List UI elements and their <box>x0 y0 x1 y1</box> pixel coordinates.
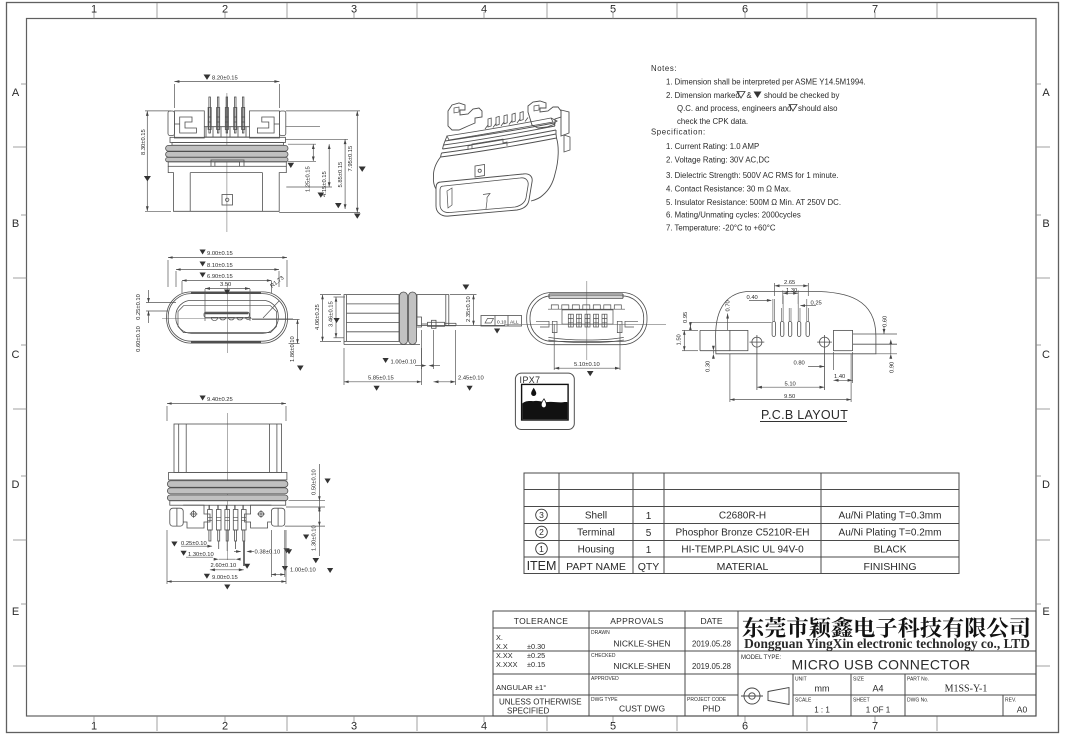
svg-text:1: 1 <box>539 544 544 554</box>
svg-text:3.46±0.15: 3.46±0.15 <box>328 301 334 327</box>
svg-text:SHEET: SHEET <box>853 698 870 704</box>
svg-text:1.25±0.15: 1.25±0.15 <box>306 166 312 192</box>
svg-text:SPECIFIED: SPECIFIED <box>507 707 549 716</box>
svg-text:Au/Ni Plating T=0.3mm: Au/Ni Plating T=0.3mm <box>839 511 942 522</box>
svg-text:C: C <box>12 349 20 361</box>
svg-text:1.30±0.10: 1.30±0.10 <box>312 525 318 551</box>
svg-text:5. Insulator Resistance: 500M: 5. Insulator Resistance: 500M Ω Min. AT … <box>666 198 841 207</box>
svg-text:0.60: 0.60 <box>883 316 889 327</box>
svg-text:5: 5 <box>646 528 652 539</box>
svg-text:NICKLE-SHEN: NICKLE-SHEN <box>613 661 670 671</box>
svg-text:4.06±0.25: 4.06±0.25 <box>315 304 321 330</box>
svg-text:X.XXX: X.XXX <box>496 660 518 669</box>
svg-text:SCALE: SCALE <box>795 698 812 704</box>
svg-text:0.70: 0.70 <box>725 300 731 311</box>
svg-text:PROJECT CODE: PROJECT CODE <box>687 697 727 703</box>
svg-text:1. Current Rating: 1.0 AMP: 1. Current Rating: 1.0 AMP <box>666 142 759 151</box>
svg-text:5.85±0.15: 5.85±0.15 <box>368 376 394 382</box>
svg-text:4: 4 <box>481 721 487 733</box>
svg-text:UNIT: UNIT <box>795 677 807 683</box>
svg-text:MATERIAL: MATERIAL <box>717 561 769 573</box>
svg-text:5: 5 <box>610 4 616 16</box>
svg-text:BLACK: BLACK <box>874 545 907 556</box>
svg-text:6.90±0.15: 6.90±0.15 <box>207 274 233 280</box>
svg-text:1: 1 <box>91 4 97 16</box>
svg-text:8.20±0.15: 8.20±0.15 <box>212 76 238 82</box>
svg-text:3: 3 <box>351 4 357 16</box>
svg-text:7.95±0.15: 7.95±0.15 <box>348 146 354 172</box>
svg-text:4. Contact Resistance: 30 m Ω: 4. Contact Resistance: 30 m Ω Max. <box>666 185 791 194</box>
svg-text:NICKLE-SHEN: NICKLE-SHEN <box>613 639 670 649</box>
svg-text:2.60±0.10: 2.60±0.10 <box>211 563 237 569</box>
svg-text:E: E <box>1042 606 1049 618</box>
svg-text:REV.: REV. <box>1005 698 1016 704</box>
svg-text:HI-TEMP.PLASIC UL 94V-0: HI-TEMP.PLASIC UL 94V-0 <box>681 545 804 556</box>
svg-text:1.00±0.10: 1.00±0.10 <box>290 567 316 573</box>
svg-text:±0.15: ±0.15 <box>527 660 545 669</box>
svg-text:±0.25: ±0.25 <box>527 651 545 660</box>
svg-text:Dongguan YingXin electronic te: Dongguan YingXin electronic technology c… <box>744 636 1030 651</box>
svg-text:5.10±0.10: 5.10±0.10 <box>574 362 600 368</box>
svg-text:DRAWN: DRAWN <box>591 630 610 636</box>
svg-text:1 : 1: 1 : 1 <box>814 706 830 715</box>
svg-text:±0.30: ±0.30 <box>527 642 545 651</box>
svg-text:0.80: 0.80 <box>794 361 805 367</box>
svg-text:CHECKED: CHECKED <box>591 653 616 659</box>
svg-text:2019.05.28: 2019.05.28 <box>692 662 731 671</box>
svg-text:1. Dimension shall be interpre: 1. Dimension shall be interpreted per AS… <box>666 78 866 87</box>
svg-text:7: 7 <box>872 4 878 16</box>
svg-text:1.00±0.10: 1.00±0.10 <box>391 360 417 366</box>
svg-text:9.00±0.15: 9.00±0.15 <box>207 251 233 257</box>
svg-text:should also: should also <box>798 104 838 113</box>
svg-text:X.X: X.X <box>496 642 508 651</box>
svg-text:9.00±0.15: 9.00±0.15 <box>212 575 238 581</box>
svg-text:ANGULAR ±1°: ANGULAR ±1° <box>496 683 546 692</box>
svg-text:DATE: DATE <box>700 616 722 626</box>
svg-text:PAPT NAME: PAPT NAME <box>566 561 626 573</box>
svg-text:Q.C. and process, engineers an: Q.C. and process, engineers and <box>677 104 791 113</box>
svg-text:PHD: PHD <box>703 704 721 714</box>
svg-text:1: 1 <box>646 511 652 522</box>
svg-text:X.: X. <box>496 633 503 642</box>
svg-text:2: 2 <box>539 527 544 537</box>
svg-text:2.45±0.10: 2.45±0.10 <box>458 376 484 382</box>
svg-text:2: 2 <box>222 4 228 16</box>
svg-text:TOLERANCE: TOLERANCE <box>514 616 569 626</box>
svg-text:A: A <box>1042 87 1050 99</box>
svg-text:IPX7: IPX7 <box>520 375 541 385</box>
svg-text:0.25±0.10: 0.25±0.10 <box>136 294 142 320</box>
svg-text:6. Mating/Unmating cycles: 200: 6. Mating/Unmating cycles: 2000cycles <box>666 211 801 220</box>
svg-text:0.50±0.10: 0.50±0.10 <box>312 469 318 495</box>
svg-text:Shell: Shell <box>585 511 607 522</box>
svg-text:ALL: ALL <box>510 320 519 326</box>
svg-text:A: A <box>12 87 20 99</box>
svg-text:4: 4 <box>481 4 487 16</box>
svg-text:X.XX: X.XX <box>496 651 513 660</box>
svg-text:Phosphor Bronze C5210R-EH: Phosphor Bronze C5210R-EH <box>676 528 810 539</box>
svg-text:E: E <box>12 606 19 618</box>
svg-text:APPROVALS: APPROVALS <box>610 616 664 626</box>
svg-text:Housing: Housing <box>578 545 615 556</box>
svg-text:DWG TYPE: DWG TYPE <box>591 697 618 703</box>
svg-text:3: 3 <box>539 510 544 520</box>
svg-text:2: 2 <box>222 721 228 733</box>
svg-text:C: C <box>1042 349 1050 361</box>
svg-text:2019.05.28: 2019.05.28 <box>692 640 731 649</box>
svg-text:1 OF 1: 1 OF 1 <box>866 706 891 715</box>
svg-text:1.30: 1.30 <box>786 288 797 294</box>
svg-text:P.C.B LAYOUT: P.C.B LAYOUT <box>761 408 848 422</box>
svg-text:Notes:: Notes: <box>651 64 677 73</box>
svg-text:C2680R-H: C2680R-H <box>719 511 766 522</box>
svg-text:1.50: 1.50 <box>677 334 683 345</box>
svg-text:Specification:: Specification: <box>651 128 706 137</box>
svg-text:A4: A4 <box>872 684 883 694</box>
svg-text:ITEM: ITEM <box>527 559 557 573</box>
svg-text:1.40: 1.40 <box>834 374 845 380</box>
svg-text:2.35±0.10: 2.35±0.10 <box>466 296 472 322</box>
svg-text:A0: A0 <box>1017 705 1028 715</box>
svg-text:0.30: 0.30 <box>706 361 712 372</box>
svg-text:2.65: 2.65 <box>784 280 795 286</box>
svg-text:1: 1 <box>646 545 652 556</box>
svg-text:1.86±0.10: 1.86±0.10 <box>290 336 296 362</box>
svg-text:3: 3 <box>351 721 357 733</box>
svg-text:5.10: 5.10 <box>785 382 796 388</box>
svg-text:5.85±0.15: 5.85±0.15 <box>338 162 344 188</box>
svg-text:MICRO USB CONNECTOR: MICRO USB CONNECTOR <box>792 657 971 673</box>
svg-text:0.90: 0.90 <box>889 362 895 373</box>
svg-text:5: 5 <box>610 721 616 733</box>
svg-text:0.60±0.10: 0.60±0.10 <box>136 326 142 352</box>
svg-text:8.30±0.15: 8.30±0.15 <box>141 129 147 155</box>
svg-text:3. Dielectric Strength: 500V A: 3. Dielectric Strength: 500V AC RMS for … <box>666 171 838 180</box>
svg-text:should be checked by: should be checked by <box>764 91 840 100</box>
svg-text:D: D <box>1042 479 1050 491</box>
svg-text:UNLESS OTHERWISE: UNLESS OTHERWISE <box>499 698 582 707</box>
svg-text:CUST DWG: CUST DWG <box>619 704 665 714</box>
svg-text:7: 7 <box>872 721 878 733</box>
svg-text:PART No.: PART No. <box>907 677 929 683</box>
svg-text:B: B <box>1042 218 1049 230</box>
svg-text:1: 1 <box>91 721 97 733</box>
svg-text:9.40±0.25: 9.40±0.25 <box>207 397 233 403</box>
svg-text:QTY: QTY <box>638 561 660 573</box>
svg-text:M1SS-Y-1: M1SS-Y-1 <box>945 684 988 695</box>
svg-text:Terminal: Terminal <box>577 528 615 539</box>
svg-text:APPROVED: APPROVED <box>591 676 619 682</box>
svg-text:&: & <box>747 91 753 100</box>
svg-text:0.95: 0.95 <box>683 312 689 323</box>
svg-text:mm: mm <box>815 684 830 694</box>
svg-text:6: 6 <box>742 721 748 733</box>
svg-text:D: D <box>12 479 20 491</box>
svg-text:B: B <box>12 218 19 230</box>
svg-text:0.38±0.10: 0.38±0.10 <box>255 549 281 555</box>
svg-text:check the CPK data.: check the CPK data. <box>677 117 748 126</box>
svg-text:8.10±0.15: 8.10±0.15 <box>207 263 233 269</box>
svg-text:2. Dimension marked: 2. Dimension marked <box>666 91 740 100</box>
svg-text:9.50: 9.50 <box>784 394 795 400</box>
svg-text:3.50: 3.50 <box>220 282 231 288</box>
svg-text:DWG No.: DWG No. <box>907 698 928 704</box>
svg-text:SIZE: SIZE <box>853 677 865 683</box>
svg-text:2. Voltage Rating: 30V AC,DC: 2. Voltage Rating: 30V AC,DC <box>666 156 770 165</box>
svg-text:FINISHING: FINISHING <box>863 561 916 573</box>
svg-text:Au/Ni Plating T=0.2mm: Au/Ni Plating T=0.2mm <box>839 528 942 539</box>
svg-text:6: 6 <box>742 4 748 16</box>
svg-text:7. Temperature: -20°C to +60°C: 7. Temperature: -20°C to +60°C <box>666 224 776 233</box>
svg-text:MODEL TYPE:: MODEL TYPE: <box>741 655 781 661</box>
svg-text:0.10: 0.10 <box>497 320 507 326</box>
